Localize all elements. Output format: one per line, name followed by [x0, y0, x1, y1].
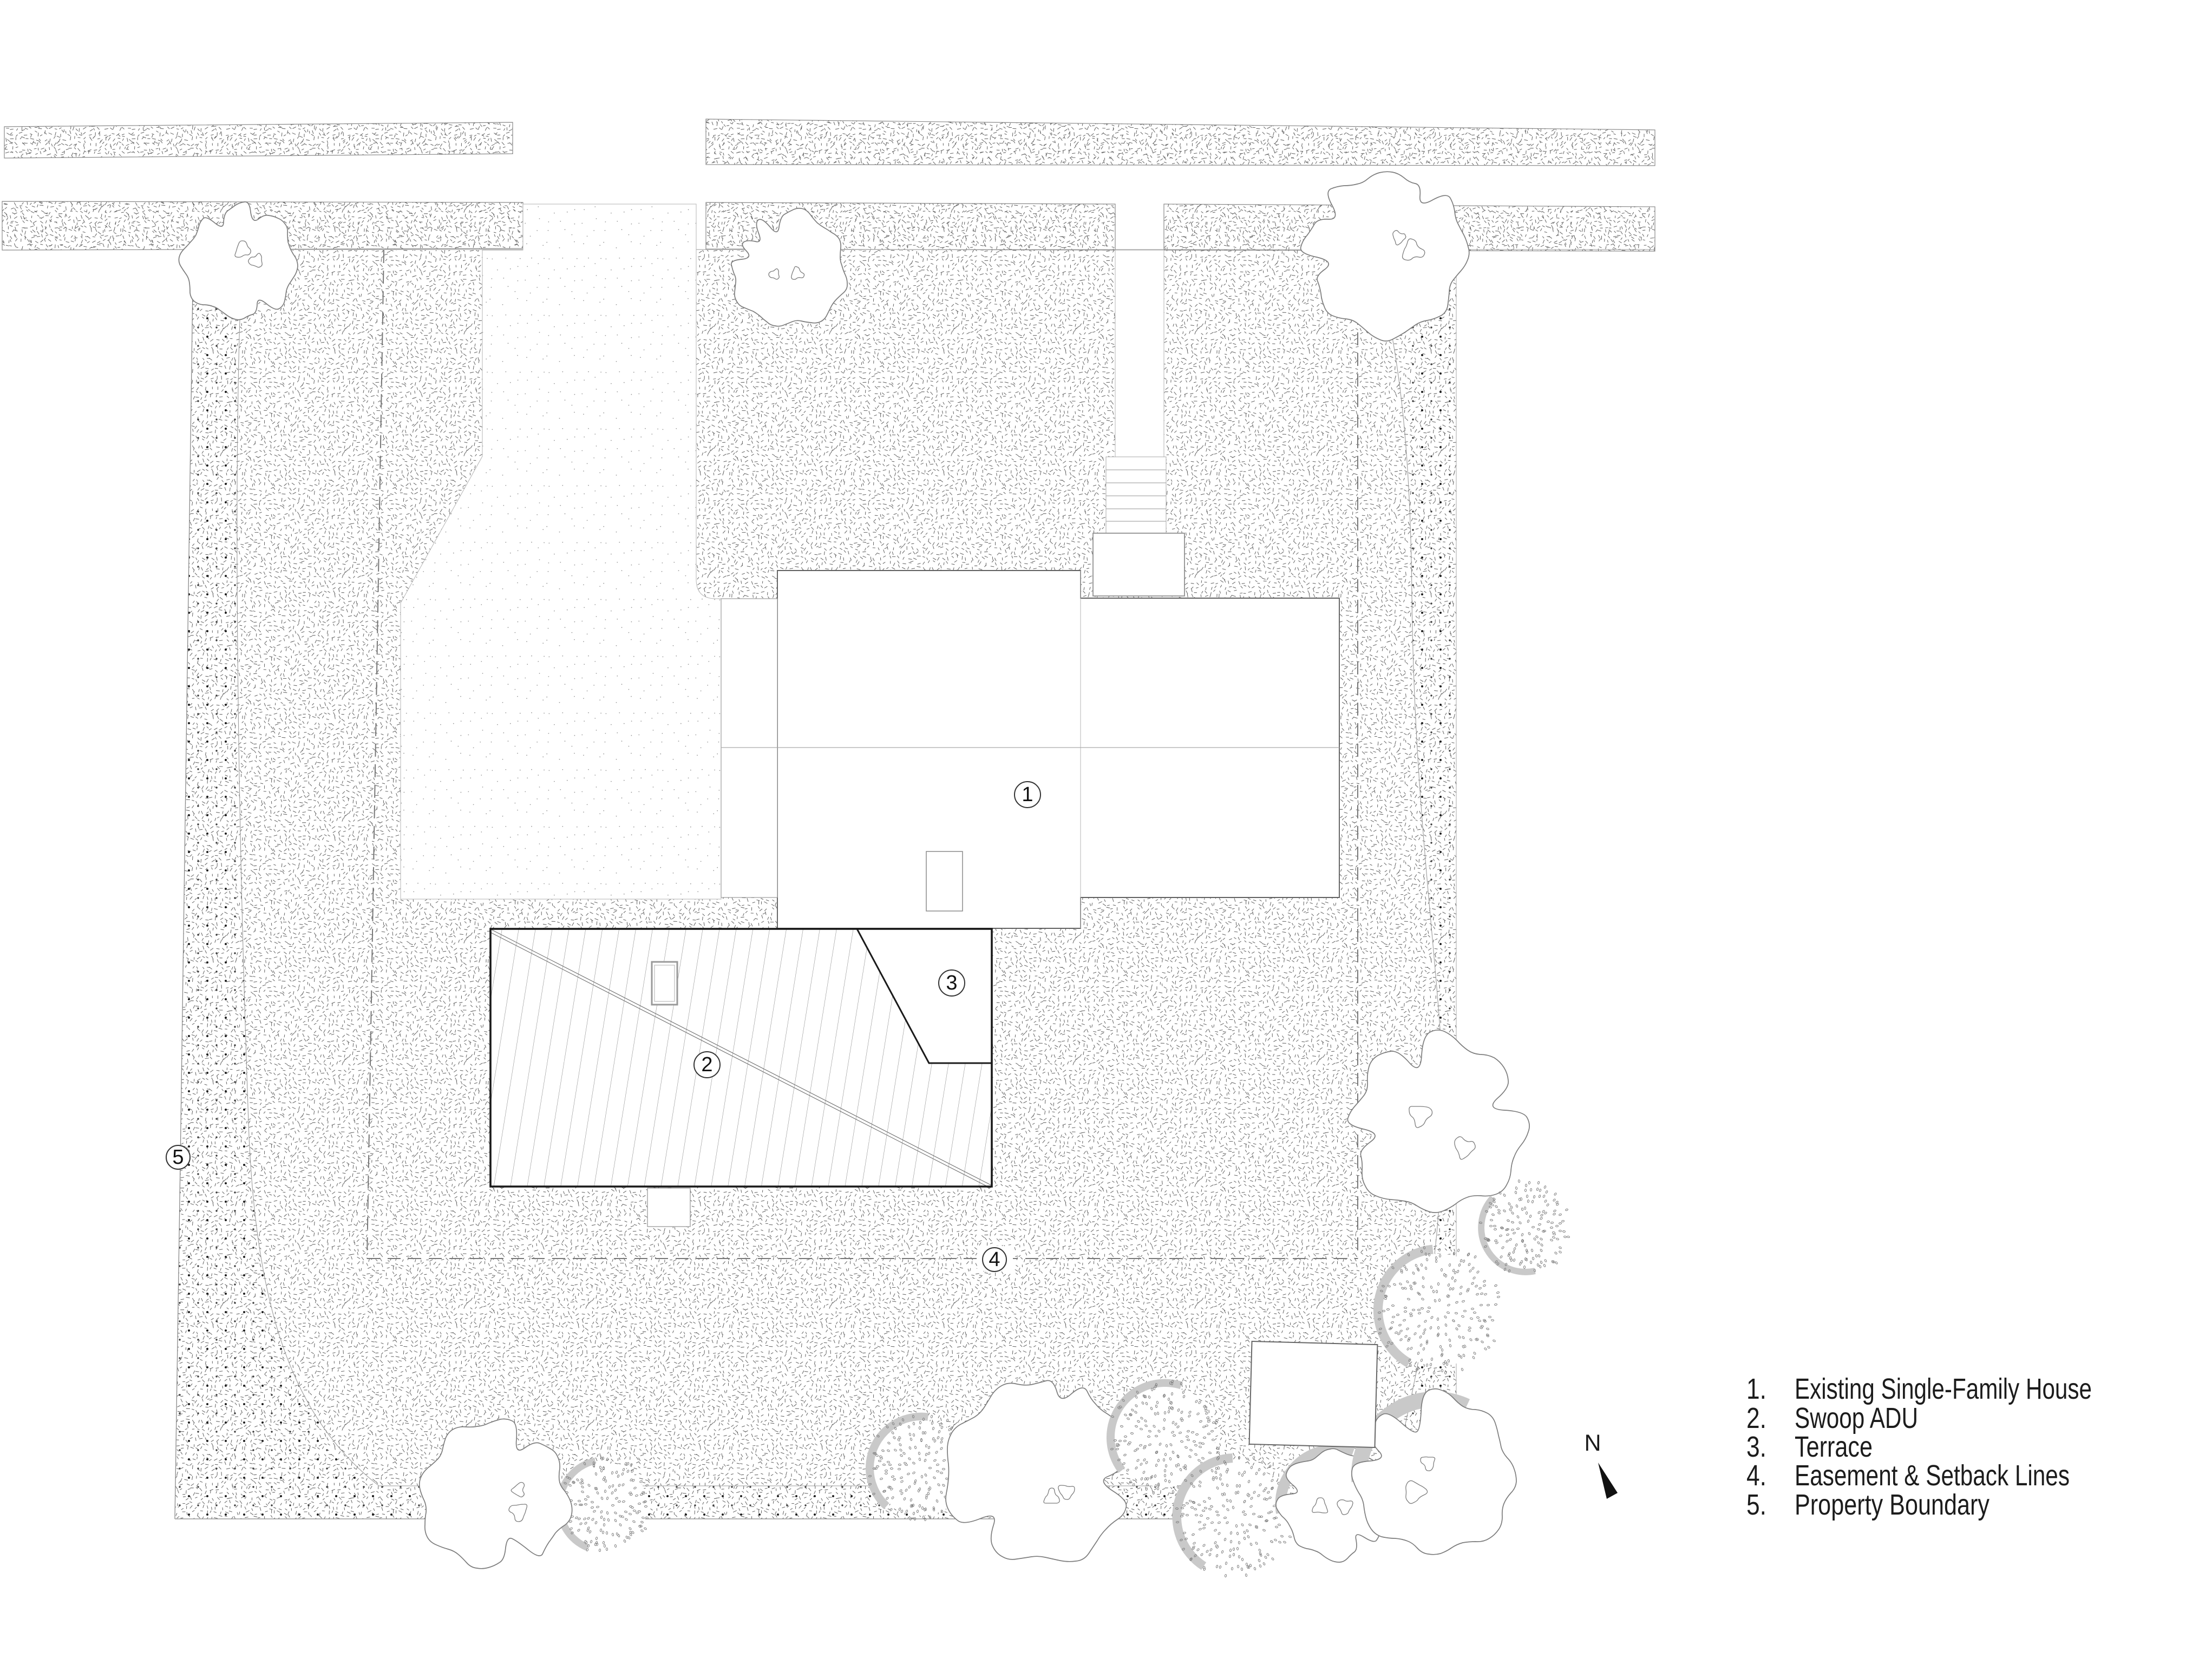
svg-text:5.: 5. [1746, 1489, 1766, 1521]
svg-text:3: 3 [946, 972, 957, 994]
svg-text:Property Boundary: Property Boundary [1795, 1489, 1990, 1521]
svg-text:1: 1 [1022, 783, 1033, 806]
svg-text:Terrace: Terrace [1795, 1431, 1873, 1463]
svg-text:Swoop ADU: Swoop ADU [1795, 1402, 1918, 1434]
svg-text:5: 5 [172, 1146, 184, 1169]
svg-text:2: 2 [701, 1053, 712, 1076]
svg-text:4.: 4. [1746, 1459, 1766, 1492]
svg-text:Existing Single-Family House: Existing Single-Family House [1795, 1373, 2092, 1405]
svg-text:N: N [1584, 1430, 1601, 1456]
svg-text:3.: 3. [1746, 1431, 1766, 1463]
svg-text:Easement & Setback Lines: Easement & Setback Lines [1795, 1459, 2070, 1492]
svg-text:2.: 2. [1746, 1402, 1766, 1434]
svg-text:1.: 1. [1746, 1373, 1766, 1405]
svg-text:4: 4 [989, 1248, 1000, 1271]
